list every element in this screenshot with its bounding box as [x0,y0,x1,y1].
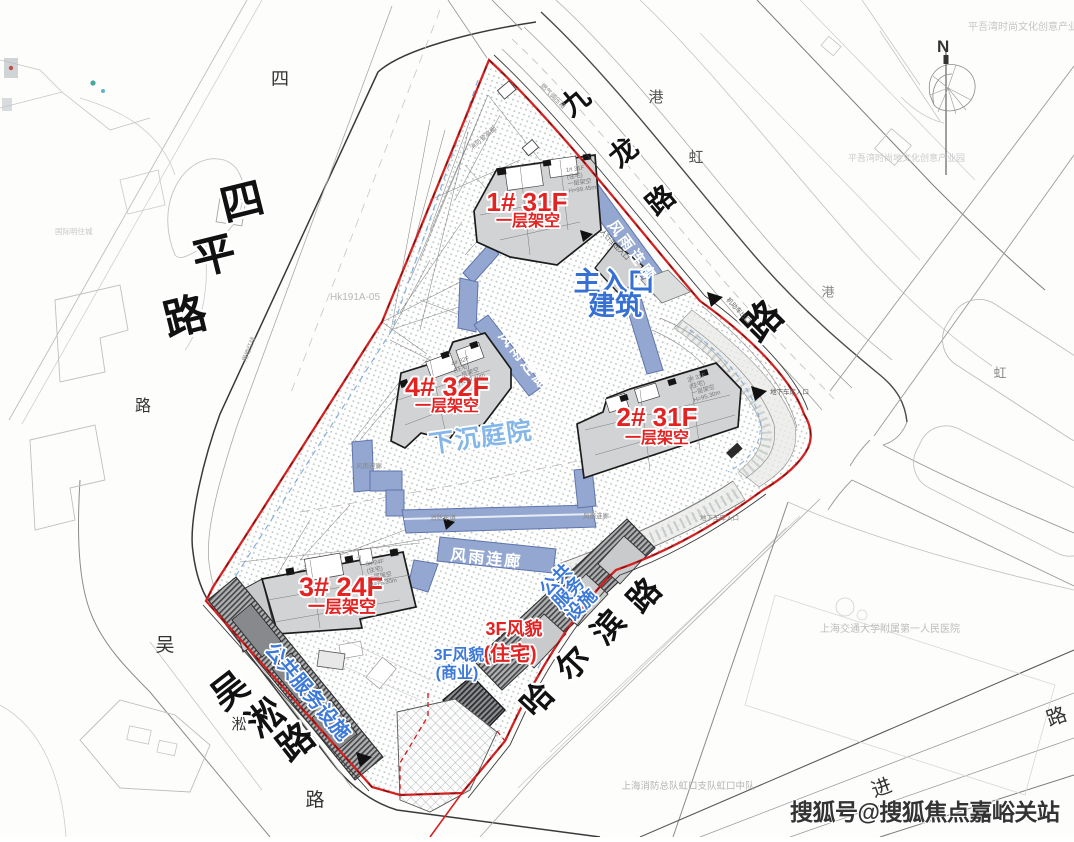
svg-text:四: 四 [271,69,289,89]
svg-text:路: 路 [305,789,324,811]
svg-text:N: N [937,37,949,56]
svg-text:(住宅): (住宅) [483,641,536,665]
svg-text:(商业): (商业) [436,663,479,682]
svg-text:上海交通大学附属第一人民医院: 上海交通大学附属第一人民医院 [820,622,960,635]
svg-text:路: 路 [135,397,151,415]
svg-text:搜狐号@搜狐焦点嘉峪关站: 搜狐号@搜狐焦点嘉峪关站 [790,799,1060,825]
svg-text:虹: 虹 [993,365,1006,380]
svg-text:地下车库入口: 地下车库入口 [700,513,739,522]
svg-text:建筑: 建筑 [588,290,642,321]
svg-text:一层架空: 一层架空 [625,428,689,447]
svg-text:地下车库入口: 地下车库入口 [770,387,809,396]
svg-text:Hk191A-05: Hk191A-05 [330,292,380,303]
svg-text:消防车道: 消防车道 [430,513,457,522]
svg-text:3F风貌: 3F风貌 [485,618,542,639]
svg-text:风雨连廊: 风雨连廊 [356,461,383,470]
svg-text:国际明住城: 国际明住城 [55,226,93,236]
svg-text:风雨连廊: 风雨连廊 [583,511,610,520]
svg-text:一层架空: 一层架空 [496,211,560,230]
svg-text:平吾湾时尚地文化创意产业园: 平吾湾时尚地文化创意产业园 [848,152,965,163]
svg-text:虹: 虹 [688,149,703,166]
svg-text:港: 港 [648,89,663,106]
svg-text:平吾湾时尚文化创意产业园: 平吾湾时尚文化创意产业园 [968,20,1074,33]
svg-text:吴: 吴 [155,635,174,656]
svg-text:3F风貌: 3F风貌 [434,645,485,664]
svg-text:2# 31F: 2# 31F [617,402,698,432]
svg-text:淞: 淞 [231,716,246,733]
svg-text:一层架空: 一层架空 [308,596,376,616]
svg-text:港: 港 [821,284,834,299]
svg-text:一层架空: 一层架空 [415,396,479,415]
svg-text:上海消防总队虹口支队虹口中队: 上海消防总队虹口支队虹口中队 [621,780,755,792]
